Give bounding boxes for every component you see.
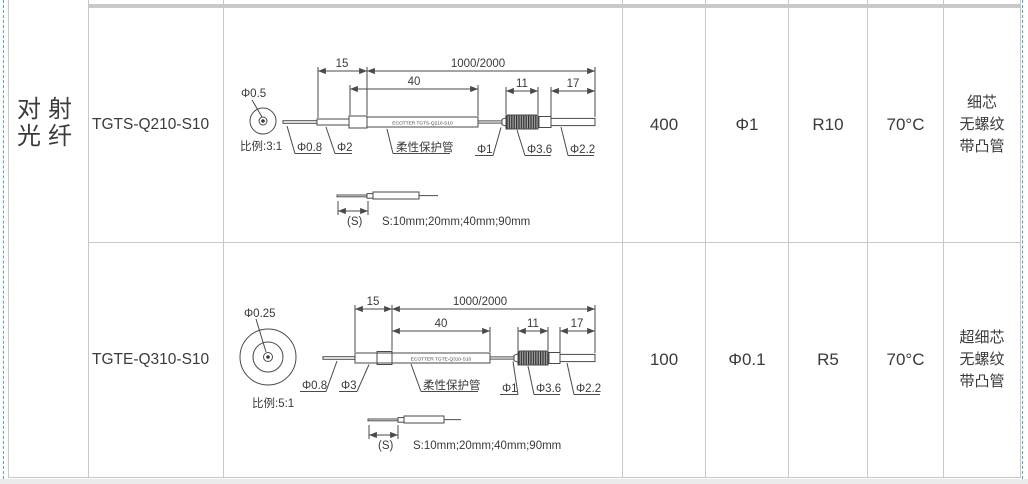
dim-tail-text: 17 bbox=[567, 78, 580, 90]
s-options-text: S:10mm;20mm;40mm;90mm bbox=[382, 216, 530, 228]
dim-knurl-text: 11 bbox=[527, 318, 539, 330]
features-cell-row1: 细芯 无螺纹 带凸管 bbox=[944, 8, 1021, 243]
feature-line: 无螺纹 bbox=[959, 349, 1004, 371]
dim-front-text: 15 bbox=[367, 296, 380, 308]
model-cell-row1: TGTS-Q210-S10 bbox=[89, 8, 224, 243]
top-strip-temp bbox=[868, 0, 944, 8]
bend-radius-cell-row1: R10 bbox=[789, 8, 868, 243]
cable bbox=[490, 357, 514, 359]
dim-length-text: 1000/2000 bbox=[453, 296, 507, 308]
model-name: TGTS-Q210-S10 bbox=[92, 116, 209, 134]
label-knurl-text: Φ3.6 bbox=[527, 144, 552, 156]
dim-body-text: 40 bbox=[408, 76, 421, 88]
label-sleeve-text: 柔性保护管 bbox=[423, 378, 481, 392]
fiber-diagram-row2: Φ0.25 比例:5:1 15 1000/2000 40 11 17 ECOTT… bbox=[224, 243, 622, 477]
page-bottom-strip bbox=[0, 479, 1028, 484]
top-strip-feature bbox=[944, 0, 1021, 8]
label-tail-text: Φ2.2 bbox=[576, 383, 601, 395]
label-knurl-text: Φ3.6 bbox=[536, 383, 561, 395]
label-cable-text: Φ1 bbox=[502, 383, 518, 395]
core-value: Φ1 bbox=[735, 115, 758, 135]
temperature-value: 70°C bbox=[887, 115, 925, 135]
catalog-page: { "page": { "margin_line_color": "#45b2c… bbox=[0, 0, 1028, 484]
top-strip-core bbox=[706, 0, 789, 8]
feature-line: 无螺纹 bbox=[959, 114, 1004, 136]
strain-relief-cone bbox=[502, 118, 506, 126]
cross-section-view bbox=[240, 319, 296, 385]
features-cell-row2: 超细芯 无螺纹 带凸管 bbox=[944, 243, 1021, 478]
tip-diameter-label: Φ0.5 bbox=[241, 88, 266, 100]
bend-radius-value: R5 bbox=[817, 350, 839, 370]
top-strip-diagram bbox=[224, 0, 623, 8]
cable bbox=[478, 121, 502, 123]
category-line1: 对射 bbox=[17, 96, 79, 123]
top-strip-distance bbox=[623, 0, 706, 8]
distance-cell-row2: 100 bbox=[623, 243, 706, 478]
scale-label: 比例:3:1 bbox=[240, 139, 282, 153]
core-cell-row2: Φ0.1 bbox=[706, 243, 789, 478]
dimension-lines bbox=[355, 305, 595, 353]
page-margin-line-right bbox=[1022, 0, 1023, 484]
end-tube bbox=[551, 118, 595, 125]
s-options-text: S:10mm;20mm;40mm;90mm bbox=[413, 440, 561, 452]
cross-leader-line bbox=[256, 319, 266, 352]
feature-line: 带凸管 bbox=[959, 371, 1004, 393]
feature-line: 超细芯 bbox=[959, 327, 1004, 349]
cross-core-dot bbox=[261, 119, 265, 123]
model-cell-row2: TGTE-Q310-S10 bbox=[89, 243, 224, 478]
strain-relief-cone bbox=[514, 354, 518, 362]
temperature-cell-row1: 70°C bbox=[868, 8, 944, 243]
label-cable-text: Φ1 bbox=[477, 144, 493, 156]
end-tube bbox=[560, 354, 595, 361]
collar bbox=[349, 116, 367, 128]
dim-tail-text: 17 bbox=[571, 318, 584, 330]
knurled-connector bbox=[506, 115, 538, 129]
s-length-detail bbox=[368, 416, 461, 439]
bend-radius-cell-row2: R5 bbox=[789, 243, 868, 478]
category-cell: 对射 光纤 bbox=[9, 0, 89, 478]
nut bbox=[549, 353, 560, 364]
knurled-connector bbox=[518, 351, 548, 365]
temperature-value: 70°C bbox=[887, 350, 925, 370]
s-dim-label: (S) bbox=[378, 440, 394, 452]
cross-section-view bbox=[250, 100, 276, 134]
page-margin-line-left bbox=[3, 0, 4, 484]
diagram-cell-row2: Φ0.25 比例:5:1 15 1000/2000 40 11 17 ECOTT… bbox=[224, 243, 623, 478]
fiber-diagram-row1: Φ0.5 比例:3:1 15 1000/2000 40 11 17 ECOTTE… bbox=[224, 8, 622, 242]
label-rod-text: Φ3 bbox=[341, 380, 357, 392]
distance-value: 400 bbox=[650, 115, 678, 135]
label-fiber-text: Φ0.8 bbox=[302, 380, 327, 392]
core-cell-row1: Φ1 bbox=[706, 8, 789, 243]
dim-body-text: 40 bbox=[435, 318, 448, 330]
core-value: Φ0.1 bbox=[728, 350, 765, 370]
label-fiber-text: Φ0.8 bbox=[297, 142, 322, 154]
top-strip-bend bbox=[789, 0, 868, 8]
nut bbox=[539, 117, 551, 128]
dimension-lines bbox=[318, 67, 595, 118]
label-sleeve-text: 柔性保护管 bbox=[396, 140, 454, 154]
dim-front-text: 15 bbox=[336, 58, 349, 70]
s-dim-label: (S) bbox=[347, 216, 363, 228]
fiber-spec-table: 对射 光纤 TGTS-Q210-S10 bbox=[8, 0, 1021, 478]
dim-length-text: 1000/2000 bbox=[451, 58, 505, 70]
fiber-tip bbox=[323, 357, 355, 360]
diagram-cell-row1: Φ0.5 比例:3:1 15 1000/2000 40 11 17 ECOTTE… bbox=[224, 8, 623, 243]
category-line2: 光纤 bbox=[17, 123, 79, 150]
label-rod-text: Φ2 bbox=[337, 142, 353, 154]
tip-diameter-label: Φ0.25 bbox=[244, 308, 276, 320]
model-name: TGTE-Q310-S10 bbox=[92, 351, 209, 369]
label-tail-text: Φ2.2 bbox=[570, 144, 595, 156]
temperature-cell-row2: 70°C bbox=[868, 243, 944, 478]
fiber-tip bbox=[283, 121, 317, 124]
body-marking-text: ECOTTER TGTE-Q310-S10 bbox=[411, 357, 472, 363]
top-strip-model bbox=[89, 0, 224, 8]
feature-line: 细芯 bbox=[967, 92, 997, 114]
cross-core-dot bbox=[266, 355, 270, 359]
distance-cell-row1: 400 bbox=[623, 8, 706, 243]
body-marking-text: ECOTTER TGTS-Q210-S10 bbox=[392, 121, 453, 127]
front-rod bbox=[317, 119, 349, 125]
distance-value: 100 bbox=[650, 350, 678, 370]
dim-knurl-text: 11 bbox=[516, 78, 528, 90]
scale-label: 比例:5:1 bbox=[252, 396, 294, 410]
s-length-detail bbox=[337, 192, 438, 215]
feature-line: 带凸管 bbox=[959, 136, 1004, 158]
bend-radius-value: R10 bbox=[812, 115, 843, 135]
